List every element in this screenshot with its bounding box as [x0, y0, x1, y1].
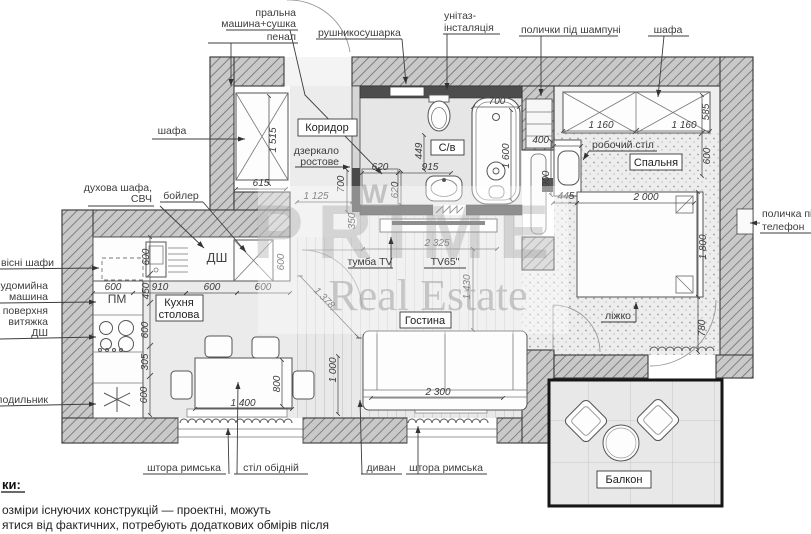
towel-dryer	[390, 87, 424, 96]
dim-text: 600	[702, 147, 713, 164]
toilet	[428, 95, 450, 131]
dim-text: 915	[422, 162, 439, 173]
callout-penal: пенал	[267, 31, 296, 43]
callout-oven: СВЧ	[131, 193, 152, 205]
mark-oven: ДШ	[207, 250, 228, 265]
watermark-word: PRIME	[253, 190, 564, 275]
wall-left-upper	[210, 57, 234, 210]
dim-text: 450	[141, 282, 152, 299]
dim-text: 1 160	[671, 120, 696, 131]
callout-dining-table: стіл обідній	[243, 462, 299, 474]
callout-wardrobe-top: шафа	[654, 24, 683, 36]
entry-threshold	[284, 57, 352, 86]
dim-text: 600	[141, 248, 152, 265]
wall-kitchen-left	[62, 210, 93, 443]
floor-plan-page: 1 515 615 700 1 125 350 620 620 915 449 …	[0, 0, 811, 534]
room-label-living: Гостина	[405, 315, 446, 327]
dim-text: 620	[372, 162, 389, 173]
bed	[577, 192, 703, 297]
callout-fridge: олодильник	[0, 394, 48, 406]
watermark: W PRIME Real Estate	[253, 179, 568, 334]
phone-shelf-niche	[737, 209, 753, 234]
wall-bottom-a	[62, 418, 178, 443]
desk-chair	[558, 151, 579, 185]
callout-curtain-right: штора римська	[409, 462, 483, 474]
wall-balcony-b	[716, 355, 753, 378]
dim-text: 585	[701, 103, 712, 120]
room-label-bedroom: Спальня	[634, 157, 678, 169]
dim-text: 700	[489, 96, 506, 107]
dim-text: 910	[152, 282, 169, 293]
wall-bottom-b	[303, 418, 407, 443]
dim-text: 449	[414, 142, 425, 159]
mark-dishwasher: ПМ	[108, 292, 127, 306]
dim-text: 305	[140, 353, 151, 370]
dim-text: 400	[532, 135, 549, 146]
callout-towel-dryer: рушникосушарка	[318, 27, 401, 39]
callout-phone-shelf: телефон	[762, 221, 805, 233]
dim-text: 900	[541, 170, 552, 187]
chair	[293, 371, 314, 399]
callout-boiler: бойлер	[163, 190, 199, 202]
room-label-bathroom: С/в	[439, 142, 456, 154]
balcony-table	[603, 425, 639, 461]
wall-balcony-a	[554, 355, 648, 378]
dim-text: 1 600	[501, 143, 512, 168]
dim-text: 2 300	[424, 387, 450, 398]
callout-desk: робочий стіл	[592, 139, 654, 151]
dim-text: 1 800	[698, 234, 709, 259]
callout-sofa: диван	[366, 462, 395, 474]
entry-door-arc	[287, 0, 350, 52]
room-label-kitchen: столова	[159, 309, 201, 321]
callout-washer: машина+сушка	[221, 18, 296, 30]
wall-top-main	[352, 57, 753, 86]
room-label-kitchen: Кухня	[164, 297, 193, 309]
dim-text: 2 000	[632, 192, 658, 203]
callout-tv: TV65"	[431, 256, 460, 268]
callout-toilet: унітаз-	[444, 10, 477, 22]
notes-line: озміри існуючих конструкцій — проектні, …	[2, 503, 271, 517]
callout-tv-stand: тумба TV	[347, 256, 392, 268]
dim-text: 1 000	[328, 357, 339, 382]
callout-wall-cabinets: вісні шафи	[1, 257, 54, 269]
notes-line: ятися від фактичних, потребують додатков…	[2, 518, 329, 532]
callout-bed: ліжко	[605, 310, 631, 322]
closet-unit	[236, 93, 288, 180]
callout-curtain-left: штора римська	[147, 462, 221, 474]
notes: ки: озміри існуючих конструкцій — проект…	[1, 477, 329, 532]
dim-text: 600	[204, 282, 221, 293]
callout-shampoo-shelves: полички під шампуні	[521, 24, 621, 36]
callout-dishwasher: машина	[9, 291, 48, 303]
living-window	[407, 418, 497, 443]
dim-text: 800	[272, 375, 283, 392]
dim-text: 780	[697, 319, 708, 336]
chair	[205, 336, 232, 357]
dim-text: 1 160	[588, 120, 613, 131]
floor-plan-drawing: 1 515 615 700 1 125 350 620 620 915 449 …	[0, 0, 811, 534]
callout-wardrobe-left: шафа	[158, 125, 187, 137]
room-label-balcony: Балкон	[606, 474, 643, 486]
chair	[252, 337, 279, 358]
chair	[171, 371, 192, 399]
dim-text: 600	[139, 386, 150, 403]
callout-phone-shelf: поличка під	[762, 208, 811, 220]
callout-hob: ДШ	[31, 327, 48, 339]
notes-heading: ки:	[2, 477, 21, 492]
callout-mirror: ростове	[300, 156, 339, 168]
dim-text: 1 515	[268, 127, 279, 152]
dim-text: 1 400	[230, 398, 255, 409]
kitchen-windowsill	[187, 409, 287, 417]
room-label-corridor: Коридор	[305, 122, 348, 134]
dim-text: 600	[140, 321, 151, 338]
callout-toilet: інсталяція	[444, 22, 494, 34]
